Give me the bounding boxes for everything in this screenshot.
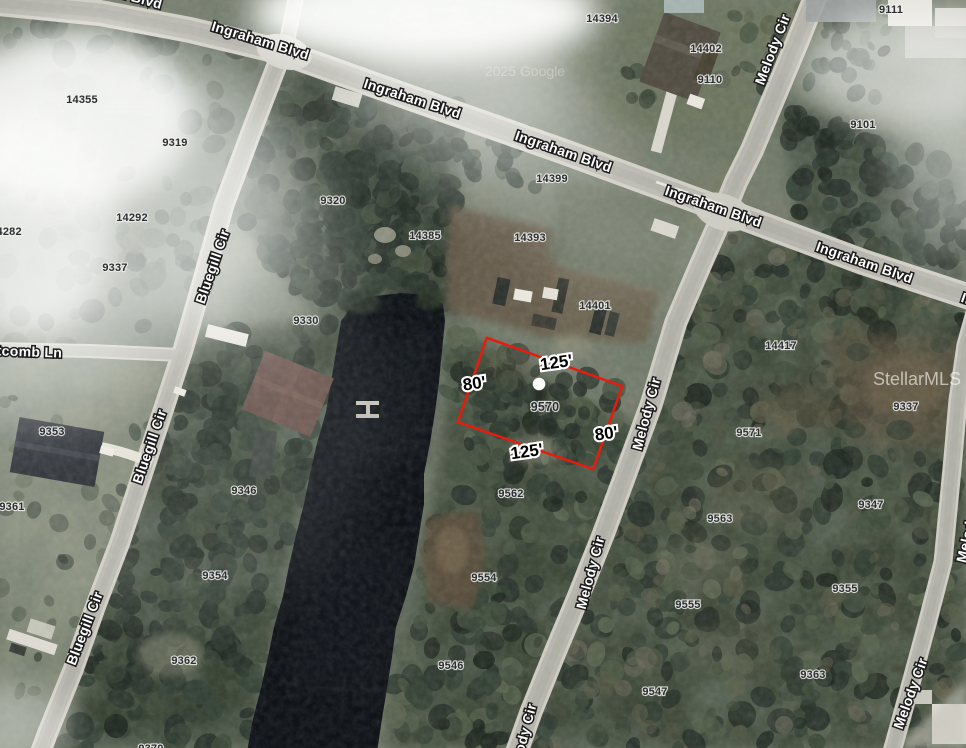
svg-text:9111: 9111 — [879, 4, 903, 16]
svg-text:14402: 14402 — [690, 43, 722, 55]
svg-text:9330: 9330 — [293, 315, 318, 327]
svg-text:9571: 9571 — [736, 427, 761, 439]
svg-text:9353: 9353 — [39, 426, 64, 438]
svg-text:9546: 9546 — [438, 660, 463, 672]
svg-text:9346: 9346 — [231, 485, 256, 497]
svg-text:Whitcomb Ln: Whitcomb Ln — [0, 341, 62, 360]
svg-text:StellarMLS: StellarMLS — [873, 369, 961, 389]
svg-text:9110: 9110 — [698, 74, 723, 86]
svg-text:80': 80' — [462, 373, 487, 395]
svg-text:14385: 14385 — [409, 230, 441, 242]
svg-text:9555: 9555 — [675, 599, 700, 611]
svg-text:14282: 14282 — [0, 226, 22, 238]
svg-text:14292: 14292 — [116, 212, 148, 224]
svg-text:14394: 14394 — [586, 13, 618, 25]
svg-text:9370: 9370 — [138, 743, 163, 748]
svg-text:9363: 9363 — [800, 669, 825, 681]
svg-text:9570: 9570 — [531, 400, 560, 414]
svg-text:14393: 14393 — [514, 232, 546, 244]
svg-text:9101: 9101 — [850, 119, 875, 131]
svg-text:9337: 9337 — [893, 401, 918, 413]
svg-text:9319: 9319 — [162, 137, 187, 149]
svg-text:14401: 14401 — [579, 300, 611, 312]
svg-text:80': 80' — [594, 423, 619, 445]
svg-text:9563: 9563 — [707, 513, 732, 525]
svg-text:14417: 14417 — [765, 340, 797, 352]
svg-text:9562: 9562 — [498, 488, 523, 500]
svg-text:14399: 14399 — [536, 173, 568, 185]
svg-text:9354: 9354 — [202, 570, 228, 582]
svg-text:9361: 9361 — [0, 501, 25, 513]
svg-text:9355: 9355 — [832, 583, 857, 595]
svg-text:9337: 9337 — [102, 262, 127, 274]
svg-text:14355: 14355 — [66, 94, 98, 106]
svg-text:9547: 9547 — [642, 686, 667, 698]
svg-text:9347: 9347 — [858, 499, 883, 511]
svg-text:9320: 9320 — [320, 195, 345, 207]
svg-text:9554: 9554 — [471, 572, 497, 584]
svg-text:2025 Google: 2025 Google — [485, 63, 565, 79]
svg-text:9362: 9362 — [171, 655, 196, 667]
